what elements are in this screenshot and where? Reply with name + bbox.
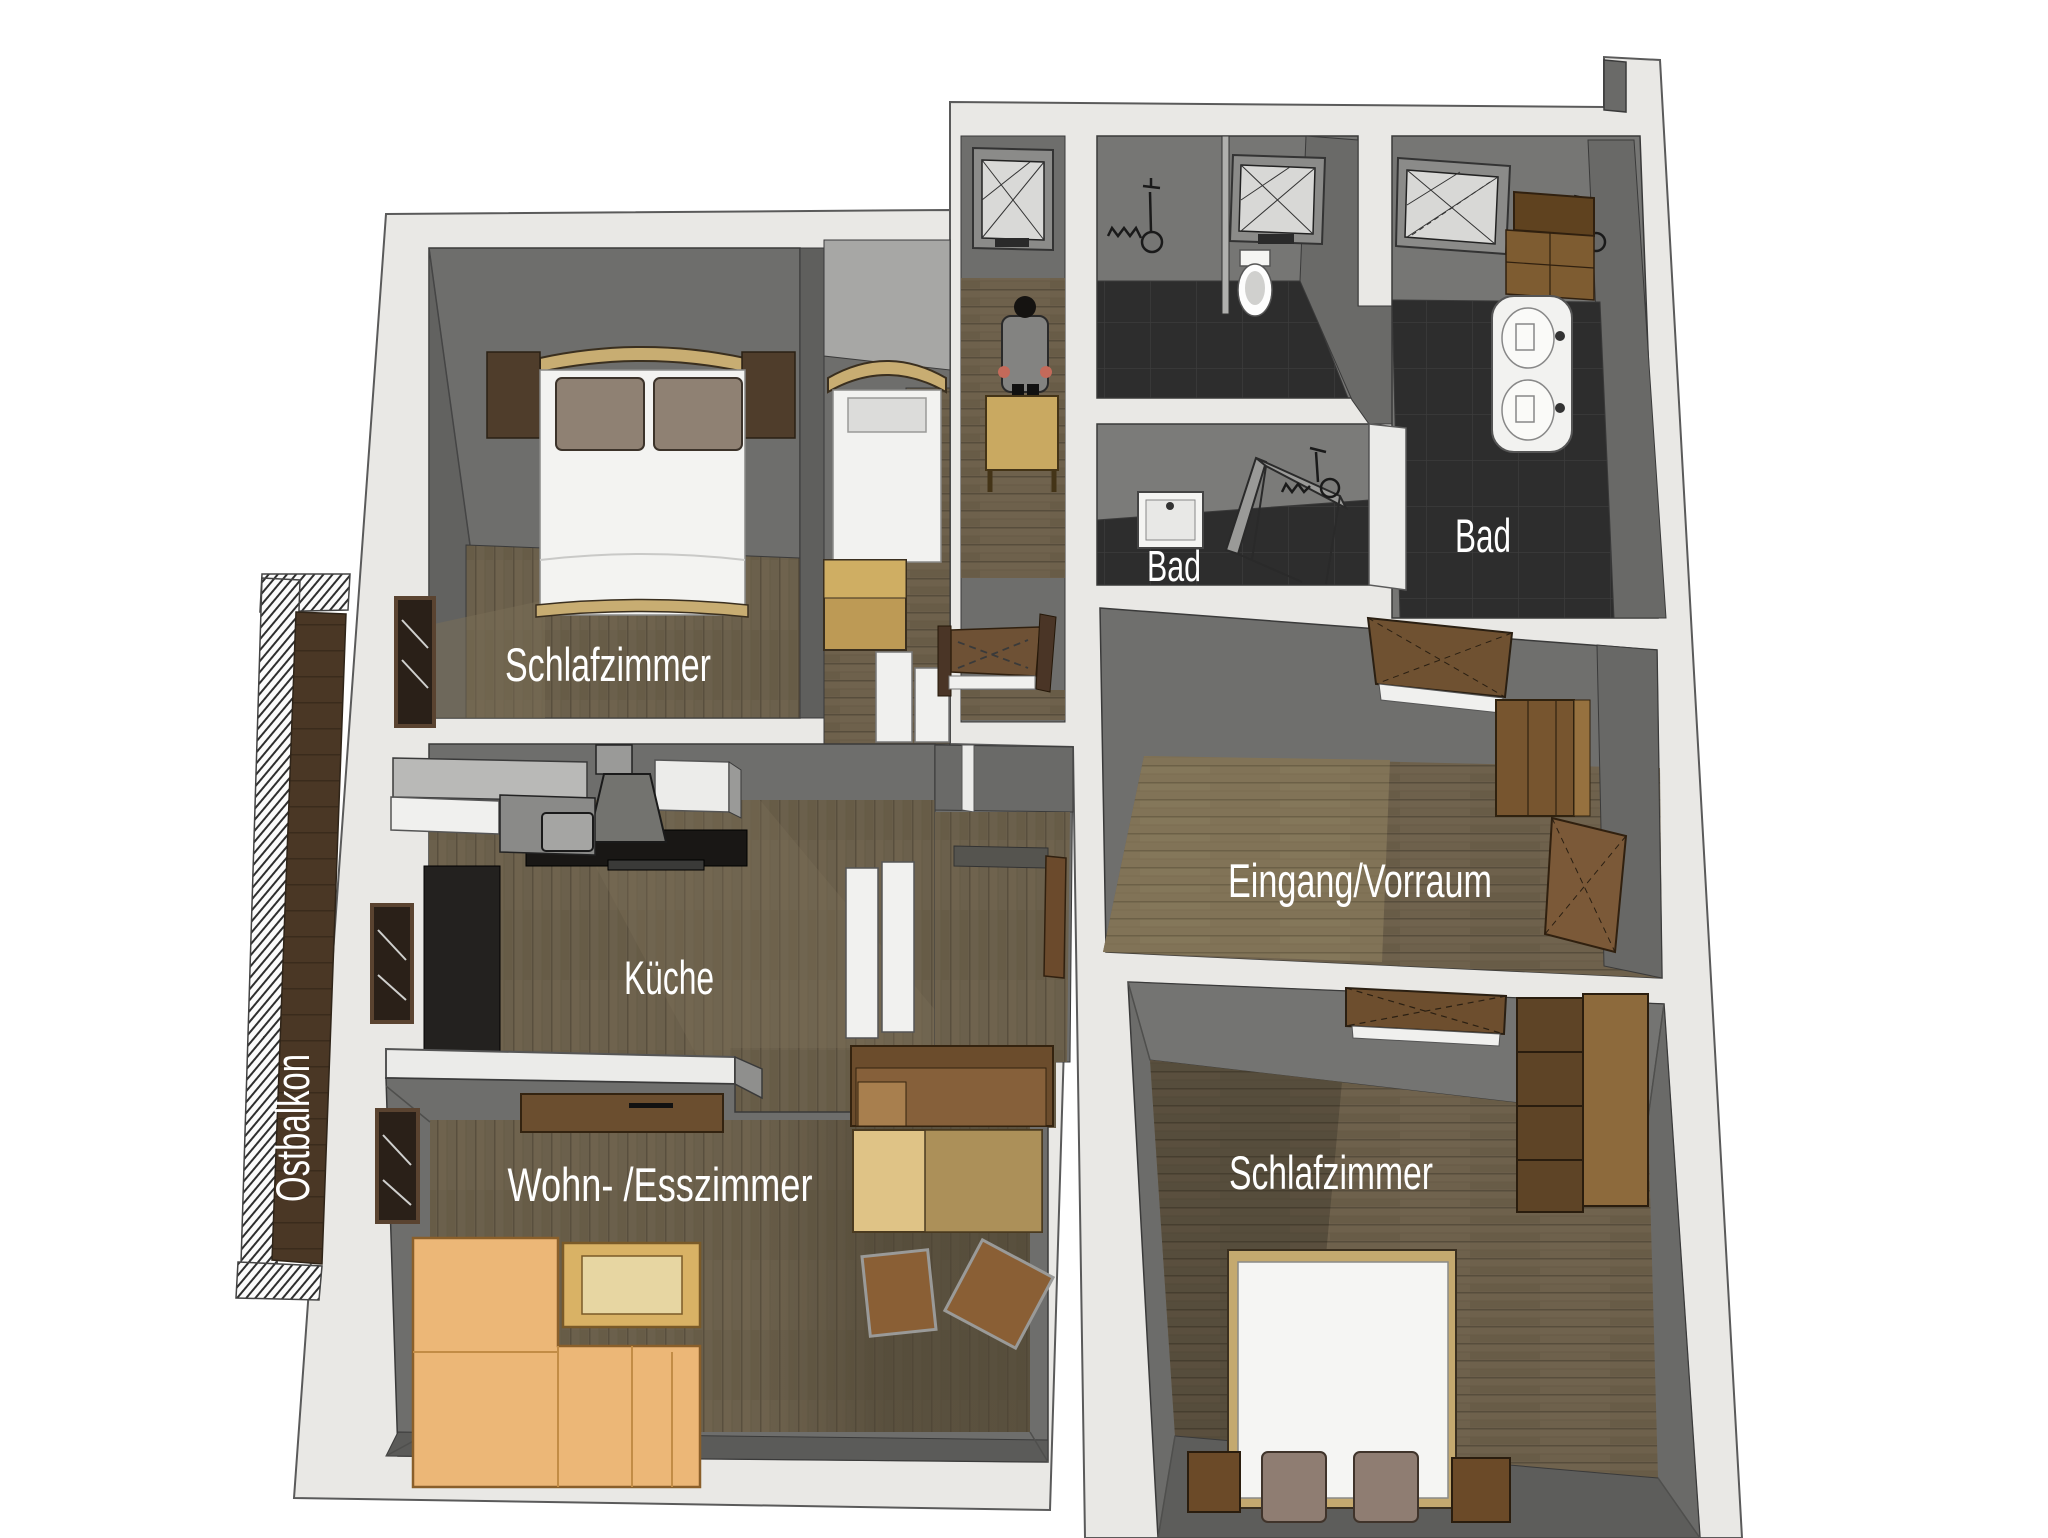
svg-text:Schlafzimmer: Schlafzimmer xyxy=(1229,1146,1433,1199)
svg-text:Ostbalkon: Ostbalkon xyxy=(266,1054,319,1202)
svg-text:Eingang/Vorraum: Eingang/Vorraum xyxy=(1228,854,1492,907)
svg-text:Bad: Bad xyxy=(1455,509,1511,562)
svg-text:Küche: Küche xyxy=(624,951,714,1004)
svg-text:Schlafzimmer: Schlafzimmer xyxy=(505,638,711,691)
svg-text:Wohn- /Esszimmer: Wohn- /Esszimmer xyxy=(508,1158,813,1211)
svg-text:Bad: Bad xyxy=(1147,542,1201,591)
